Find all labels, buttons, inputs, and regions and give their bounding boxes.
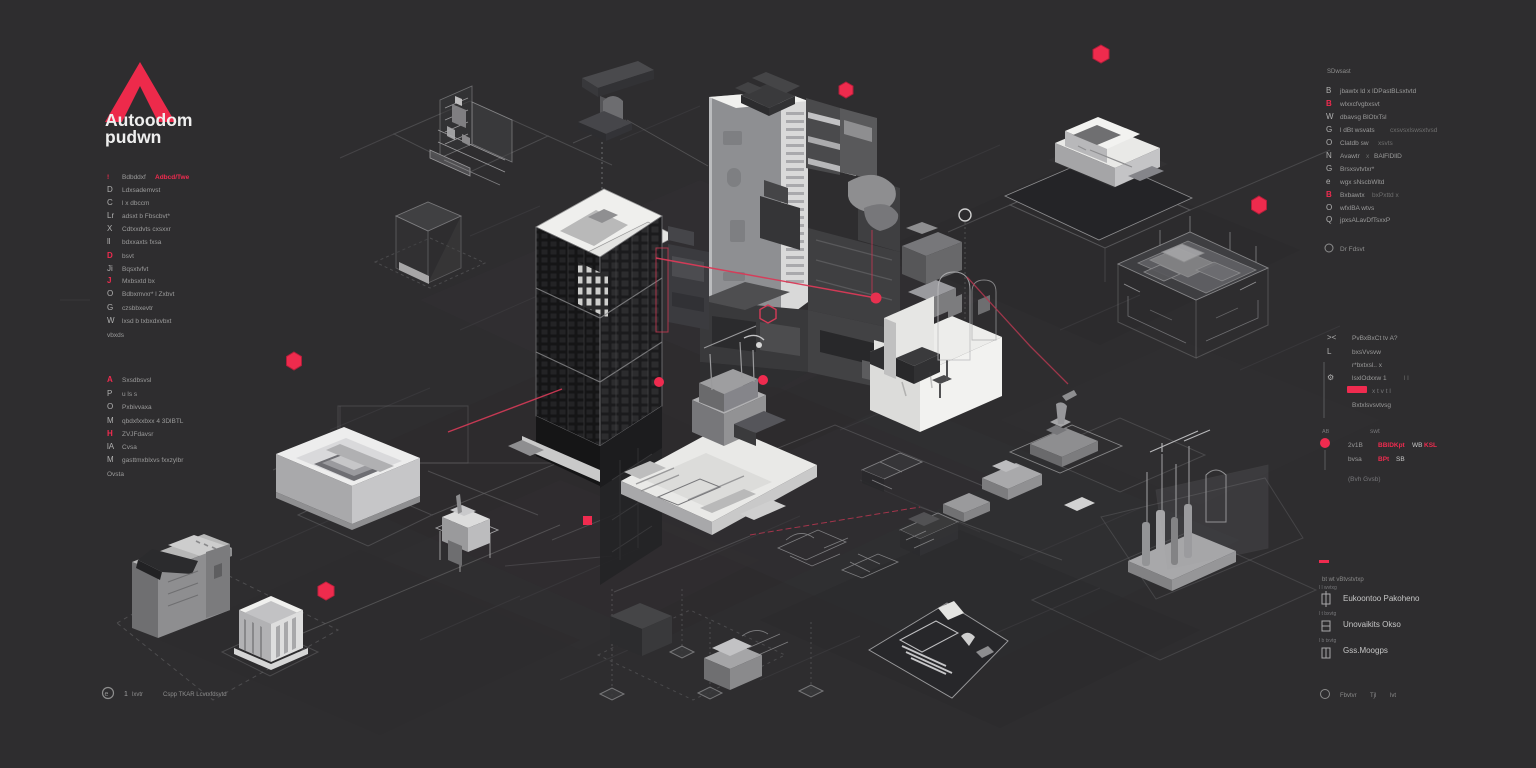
svg-text:bsvt: bsvt (122, 253, 134, 260)
svg-text:M: M (107, 416, 114, 425)
svg-text:Cspp TKAR Lcvrxfdsvtd: Cspp TKAR Lcvrxfdsvtd (163, 692, 227, 698)
svg-text:O: O (107, 289, 113, 298)
svg-text:ll: ll (107, 237, 111, 246)
svg-text:AB: AB (1322, 429, 1330, 435)
svg-text:l l: l l (1404, 375, 1409, 382)
svg-text:l b txvtg: l b txvtg (1319, 638, 1336, 644)
svg-text:Pxbivvaxa: Pxbivvaxa (122, 404, 152, 411)
svg-text:Sxsdbsvsl: Sxsdbsvsl (122, 377, 152, 384)
svg-text:jpxsALavDfTsxxP: jpxsALavDfTsxxP (1339, 217, 1390, 224)
svg-text:H: H (107, 429, 113, 438)
svg-text:Bxtxlsvsvtvsg: Bxtxlsvsvtvsg (1352, 402, 1391, 409)
svg-text:O: O (1326, 138, 1332, 147)
svg-text:⚙: ⚙ (1327, 373, 1334, 382)
svg-text:1: 1 (124, 691, 128, 698)
svg-text:O: O (107, 402, 113, 411)
svg-text:B: B (1326, 86, 1331, 95)
svg-text:wfxlBA wtvs: wfxlBA wtvs (1339, 205, 1375, 212)
svg-text:Bdbxmvxr* l Zxbvt: Bdbxmvxr* l Zxbvt (122, 291, 175, 298)
svg-text:wgx sNscbWltd: wgx sNscbWltd (1339, 179, 1385, 186)
svg-text:bvsa: bvsa (1348, 456, 1362, 463)
svg-text:lxsd b txbxdxvbxt: lxsd b txbxdxvbxt (122, 318, 172, 325)
svg-text:W: W (107, 316, 115, 325)
svg-text:pudwn: pudwn (105, 127, 161, 147)
svg-text:C: C (107, 198, 113, 207)
svg-text:KSL: KSL (1424, 442, 1437, 449)
svg-text:Clatdb sw: Clatdb sw (1340, 140, 1369, 147)
svg-text:Dr Fdsvt: Dr Fdsvt (1340, 246, 1365, 253)
svg-text:Bdbddxf: Bdbddxf (122, 174, 146, 181)
svg-text:D: D (107, 251, 113, 260)
svg-text:BPt: BPt (1378, 456, 1390, 463)
svg-text:D: D (107, 185, 113, 194)
svg-text:X: X (107, 224, 113, 233)
svg-text:xsvts: xsvts (1378, 140, 1394, 147)
svg-text:gasttmxblxvs fxxzylbr: gasttmxblxvs fxxzylbr (122, 457, 184, 464)
svg-text:wlxxcfvgbxsvt: wlxxcfvgbxsvt (1339, 101, 1380, 108)
svg-text:swt: swt (1370, 428, 1380, 435)
svg-text:dbavsg BlOtxTsl: dbavsg BlOtxTsl (1340, 114, 1387, 121)
svg-text:PvBxBxCt tv A?: PvBxBxCt tv A? (1352, 335, 1398, 342)
svg-text:lvt: lvt (1390, 693, 1396, 699)
svg-text:Bxbawtx: Bxbawtx (1340, 192, 1365, 199)
svg-text:Eukoontoo Pakoheno: Eukoontoo Pakoheno (1343, 594, 1420, 603)
svg-text:vbxds: vbxds (107, 332, 125, 339)
svg-text:e: e (1326, 177, 1331, 186)
svg-text:czsbbxevtr: czsbbxevtr (122, 305, 154, 312)
svg-text:qbdxfxxbxx 4 3DlBTL: qbdxfxxbxx 4 3DlBTL (122, 418, 184, 425)
svg-text:W: W (1326, 112, 1334, 121)
svg-text:2v1B: 2v1B (1348, 442, 1363, 449)
svg-text:B: B (1326, 190, 1332, 199)
svg-text:l dBt wsvats: l dBt wsvats (1340, 127, 1375, 134)
svg-text:SDwsast: SDwsast (1327, 69, 1351, 75)
svg-text:Ovsta: Ovsta (107, 471, 124, 478)
svg-text:adsxt b Fbscbvt*: adsxt b Fbscbvt* (122, 213, 171, 220)
svg-text:Adbcd/Twe: Adbcd/Twe (155, 174, 190, 181)
svg-text:Avawtr: Avawtr (1340, 153, 1361, 160)
svg-text:Fbvtvr: Fbvtvr (1340, 693, 1357, 699)
svg-text:Ldxsademvst: Ldxsademvst (122, 187, 160, 194)
svg-text:G: G (1326, 125, 1332, 134)
svg-text:G: G (107, 303, 113, 312)
svg-text:x t v t l: x t v t l (1372, 388, 1391, 395)
svg-text:M: M (107, 455, 114, 464)
svg-text:Cvsa: Cvsa (122, 444, 137, 451)
svg-text:cxsvsxlswsxtvsd: cxsvsxlswsxtvsd (1390, 127, 1438, 134)
svg-text:l t bxvtg: l t bxvtg (1319, 611, 1336, 617)
svg-text:e: e (105, 691, 109, 698)
svg-text:Ji: Ji (107, 264, 113, 273)
svg-text:bt wt vBtvstvtxp: bt wt vBtvstvtxp (1322, 577, 1364, 583)
svg-text:Q: Q (1326, 215, 1332, 224)
svg-text:Unovaikits Okso: Unovaikits Okso (1343, 620, 1401, 629)
svg-text:(Bvh Gvsb): (Bvh Gvsb) (1348, 476, 1381, 483)
svg-text:bxPxttd x: bxPxttd x (1372, 192, 1399, 199)
svg-text:lsxlOdxxw 1: lsxlOdxxw 1 (1352, 375, 1387, 382)
svg-text:P: P (107, 389, 112, 398)
svg-text:A: A (107, 375, 113, 384)
svg-text:Lr: Lr (107, 211, 114, 220)
svg-text:bdxxaxts fxsa: bdxxaxts fxsa (122, 239, 162, 246)
svg-text:lA: lA (107, 442, 115, 451)
svg-text:J: J (107, 276, 111, 285)
svg-text:Cdtxxdvts cxsxxr: Cdtxxdvts cxsxxr (122, 226, 172, 233)
svg-text:WB: WB (1412, 442, 1422, 449)
svg-text:Mxbsxtd bx: Mxbsxtd bx (122, 278, 156, 285)
svg-text:Gss.Moogps: Gss.Moogps (1343, 646, 1388, 655)
svg-text:N: N (1326, 151, 1332, 160)
svg-text:Bqsxtvfvt: Bqsxtvfvt (122, 266, 149, 273)
svg-text:L: L (1327, 347, 1332, 356)
svg-text:l l wvtxg: l l wvtxg (1319, 585, 1337, 591)
svg-text:bxsVvsvw: bxsVvsvw (1352, 349, 1381, 356)
svg-text:BBlDKpt: BBlDKpt (1378, 442, 1406, 449)
svg-text:SB: SB (1396, 456, 1405, 463)
svg-text:!: ! (107, 174, 109, 181)
svg-text:l x dbccm: l x dbccm (122, 200, 149, 207)
svg-text:Tjl: Tjl (1370, 693, 1376, 699)
svg-text:jbawtx ld x lDPastBLsxtvt: jbawtx ld x lDPastBLsxtvtd (1339, 88, 1417, 95)
svg-text:O: O (1326, 203, 1332, 212)
svg-text:BAlFlDllD: BAlFlDllD (1374, 153, 1402, 160)
svg-text:lxvtr: lxvtr (132, 692, 143, 698)
svg-text:G: G (1326, 164, 1332, 173)
svg-text:Brsxsvtvtxr*: Brsxsvtvtxr* (1340, 166, 1375, 173)
svg-text:B: B (1326, 99, 1332, 108)
svg-text:ZVJFdavsr: ZVJFdavsr (122, 431, 154, 438)
svg-text:><: >< (1327, 333, 1337, 342)
svg-text:u ls s: u ls s (122, 391, 138, 398)
svg-text:r*bxtxsl.. x: r*bxtxsl.. x (1352, 362, 1383, 369)
